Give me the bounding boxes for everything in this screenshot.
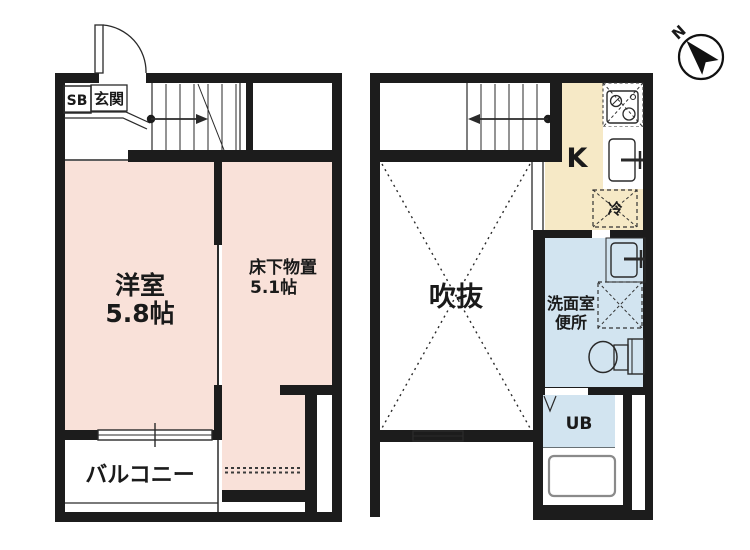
second-floor-plan: K 冷 吹抜 洗面室 便所 UB xyxy=(370,73,653,520)
void-railing xyxy=(532,162,543,230)
refrigerator-label: 冷 xyxy=(607,200,622,218)
compass-icon: N xyxy=(668,22,723,79)
floorplan-drawing: SB 玄関 洋室 5.8帖 床下物置 5.1帖 バルコニー xyxy=(0,0,750,550)
western-room-size: 5.8帖 xyxy=(105,299,174,328)
entrance-label: 玄関 xyxy=(94,90,124,108)
storage-size: 5.1帖 xyxy=(250,277,297,298)
first-floor-plan: SB 玄関 洋室 5.8帖 床下物置 5.1帖 バルコニー xyxy=(55,25,342,522)
kitchen-sink-icon xyxy=(603,127,643,189)
storage-label: 床下物置 xyxy=(249,257,317,278)
floorplan-page: SB 玄関 洋室 5.8帖 床下物置 5.1帖 バルコニー xyxy=(0,0,750,550)
void-label: 吹抜 xyxy=(429,282,484,313)
unit-bath-label: UB xyxy=(566,414,593,434)
western-room-label: 洋室 xyxy=(115,271,165,300)
stove-icon xyxy=(603,83,643,127)
bathtub-icon xyxy=(549,456,615,496)
entrance-door-icon xyxy=(95,25,146,83)
kitchen-label: K xyxy=(567,143,589,174)
shoe-box-label: SB xyxy=(67,93,88,109)
toilet-label: 便所 xyxy=(555,313,587,332)
underfloor-storage-lower xyxy=(222,385,305,490)
washroom-label: 洗面室 xyxy=(547,294,595,313)
balcony-label: バルコニー xyxy=(85,463,195,488)
